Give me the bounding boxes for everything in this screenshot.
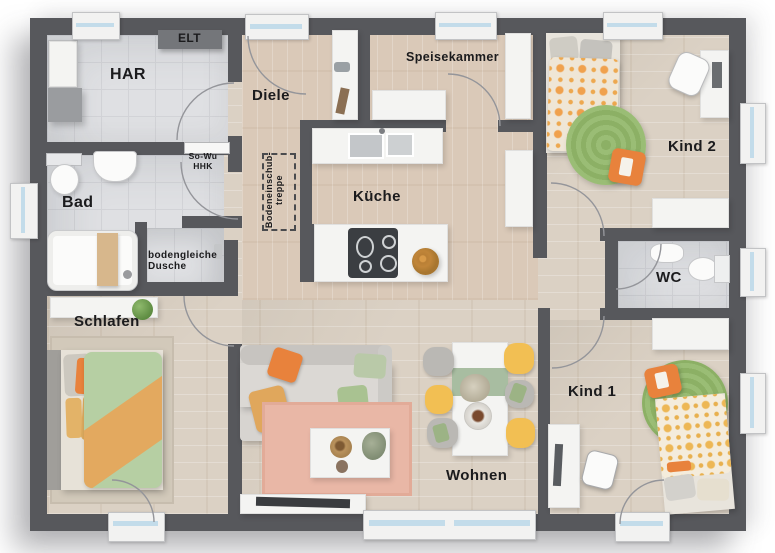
terrace-window-wohnen bbox=[363, 510, 536, 540]
terrace-door-schlafen bbox=[108, 512, 165, 542]
window bbox=[740, 248, 766, 297]
floor-pillow-orange bbox=[607, 147, 646, 186]
dining-chair-yellow bbox=[425, 385, 453, 414]
pillow-orange bbox=[667, 460, 692, 472]
wall bbox=[182, 216, 242, 228]
wall bbox=[358, 28, 370, 122]
room-label-kind1: Kind 1 bbox=[568, 384, 616, 401]
wall bbox=[498, 120, 538, 132]
pillow-amber bbox=[65, 398, 82, 439]
room-label-diele: Diele bbox=[252, 88, 290, 105]
burner bbox=[380, 255, 397, 272]
storage-box bbox=[48, 88, 82, 122]
toy bbox=[619, 157, 634, 177]
window bbox=[72, 12, 120, 40]
pillow bbox=[663, 473, 696, 501]
floor-plan: HAR ELT Diele Speisekammer Kind 2 So-Wu … bbox=[0, 0, 775, 553]
room-label-wohnen: Wohnen bbox=[446, 468, 507, 485]
washing-machine bbox=[48, 40, 78, 88]
room-label-har: HAR bbox=[110, 66, 146, 84]
kitchen-tall-unit bbox=[505, 150, 533, 227]
burner bbox=[359, 260, 372, 273]
pillow bbox=[697, 478, 729, 501]
room-label-kueche: Küche bbox=[353, 189, 401, 206]
dining-chair-gray bbox=[505, 380, 534, 408]
monitor bbox=[712, 62, 722, 88]
fruit-bowl bbox=[412, 248, 439, 275]
decor-vase bbox=[336, 460, 348, 473]
window bbox=[10, 183, 38, 239]
burner bbox=[382, 235, 396, 249]
dining-chair-gray bbox=[423, 347, 454, 376]
desk-kind1 bbox=[548, 424, 580, 508]
terrace-door-kind1 bbox=[615, 512, 670, 542]
decor-bowl bbox=[330, 436, 352, 458]
wc-cistern bbox=[714, 255, 730, 283]
room-label-speisekammer: Speisekammer bbox=[406, 50, 499, 64]
napkin-green bbox=[508, 382, 527, 404]
kitchen-sink-2 bbox=[386, 133, 414, 157]
faucet bbox=[379, 128, 385, 134]
wall bbox=[605, 241, 618, 311]
room-label-elt: ELT bbox=[178, 32, 201, 45]
wall bbox=[600, 228, 732, 241]
bath-faucet bbox=[123, 270, 132, 279]
table-bowl bbox=[464, 402, 492, 430]
note-sowu-hhk: So-Wu HHK bbox=[180, 152, 226, 171]
room-label-wc: WC bbox=[656, 270, 682, 287]
bath-caddy bbox=[97, 233, 118, 286]
pillow-sage bbox=[353, 353, 387, 379]
wardrobe-kind1 bbox=[652, 318, 729, 350]
napkin-green bbox=[432, 422, 450, 443]
burner bbox=[356, 236, 374, 258]
entrance-door bbox=[245, 14, 309, 40]
room-label-bad: Bad bbox=[62, 194, 93, 212]
window bbox=[603, 12, 663, 40]
bathtub bbox=[47, 230, 138, 291]
dining-chair-yellow bbox=[506, 418, 535, 448]
bed-headboard bbox=[47, 350, 61, 490]
kitchen-sink bbox=[348, 133, 384, 159]
duvet-green bbox=[84, 352, 162, 488]
bed-kind1 bbox=[655, 393, 735, 515]
dining-chair-gray bbox=[427, 418, 458, 448]
wc-sink bbox=[650, 243, 684, 263]
wall bbox=[300, 132, 312, 226]
wall bbox=[533, 18, 547, 258]
wall bbox=[224, 240, 238, 296]
shoes bbox=[334, 62, 350, 72]
dining-chair-yellow bbox=[504, 343, 534, 374]
room-label-kind2: Kind 2 bbox=[668, 139, 716, 156]
window bbox=[435, 12, 497, 40]
table-flowers bbox=[460, 374, 490, 402]
wall bbox=[300, 224, 314, 282]
toy bbox=[654, 371, 669, 389]
pantry-counter bbox=[372, 90, 446, 120]
wall bbox=[228, 18, 242, 82]
room-label-schlafen: Schlafen bbox=[74, 314, 140, 331]
window bbox=[740, 373, 766, 434]
note-bodeneinschubtreppe: Bodeneinschub- treppe bbox=[264, 145, 290, 235]
throw-blanket bbox=[84, 369, 162, 488]
pantry-shelf bbox=[505, 33, 531, 119]
sideboard-kind2 bbox=[652, 198, 729, 228]
window bbox=[740, 103, 766, 164]
toilet bbox=[50, 164, 79, 195]
note-dusche: bodengleiche Dusche bbox=[148, 250, 217, 272]
